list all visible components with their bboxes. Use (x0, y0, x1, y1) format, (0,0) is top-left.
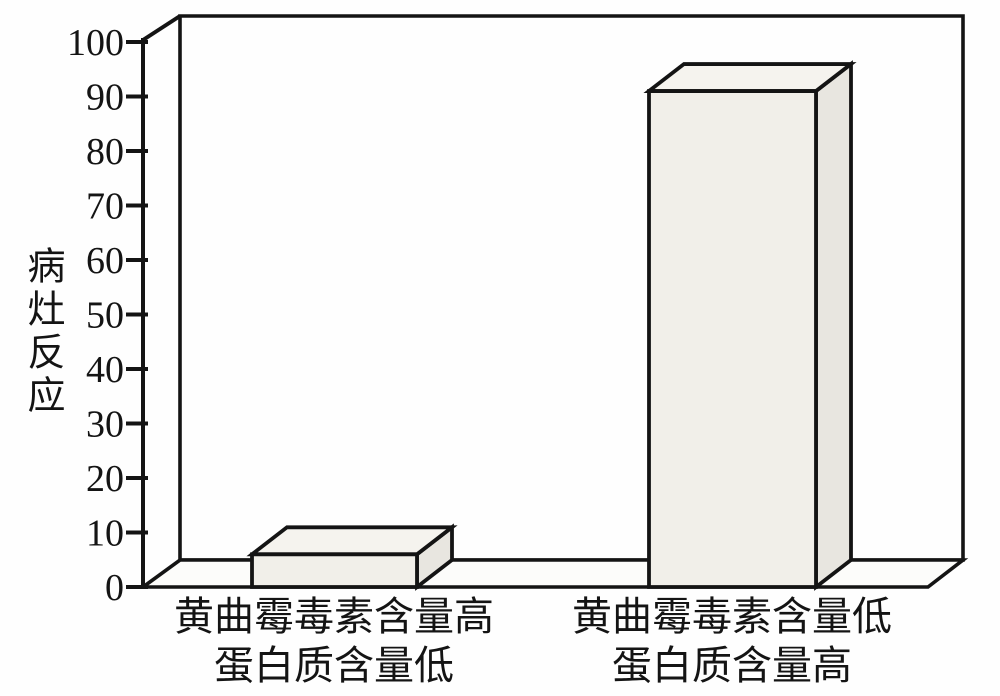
bar-front-face (252, 554, 417, 587)
y-axis-title: 病灶反应 (20, 246, 64, 418)
category-label-1-line2: 蛋白质含量低 (124, 641, 544, 690)
bar-top-face (649, 64, 851, 91)
bar-1 (252, 527, 452, 587)
aflatoxin-protein-lesion-chart: 0102030405060708090100 病灶反应 黄曲霉毒素含量高 蛋白质… (0, 0, 1000, 696)
axis-depth-connector (143, 16, 180, 40)
y-tick-label: 0 (105, 567, 124, 609)
category-label-2: 黄曲霉毒素含量低 蛋白质含量高 (522, 592, 942, 690)
y-tick-label: 10 (86, 513, 124, 555)
bar-top-face (252, 527, 452, 554)
y-axis-tick-labels: 0102030405060708090100 (67, 22, 124, 609)
category-label-2-line2: 蛋白质含量高 (522, 641, 942, 690)
category-label-1: 黄曲霉毒素含量高 蛋白质含量低 (124, 592, 544, 690)
y-tick-label: 30 (86, 404, 124, 446)
y-tick-label: 60 (86, 240, 124, 282)
y-tick-label: 90 (86, 77, 124, 119)
category-label-1-line1: 黄曲霉毒素含量高 (174, 594, 494, 639)
bar-front-face (649, 91, 816, 587)
y-tick-label: 100 (67, 22, 124, 64)
bar-2 (649, 64, 851, 587)
y-tick-label: 20 (86, 458, 124, 500)
y-tick-label: 80 (86, 131, 124, 173)
bar-side-face (816, 64, 851, 587)
category-label-2-line1: 黄曲霉毒素含量低 (572, 594, 892, 639)
y-tick-label: 70 (86, 186, 124, 228)
y-tick-label: 50 (86, 295, 124, 337)
y-tick-label: 40 (86, 349, 124, 391)
